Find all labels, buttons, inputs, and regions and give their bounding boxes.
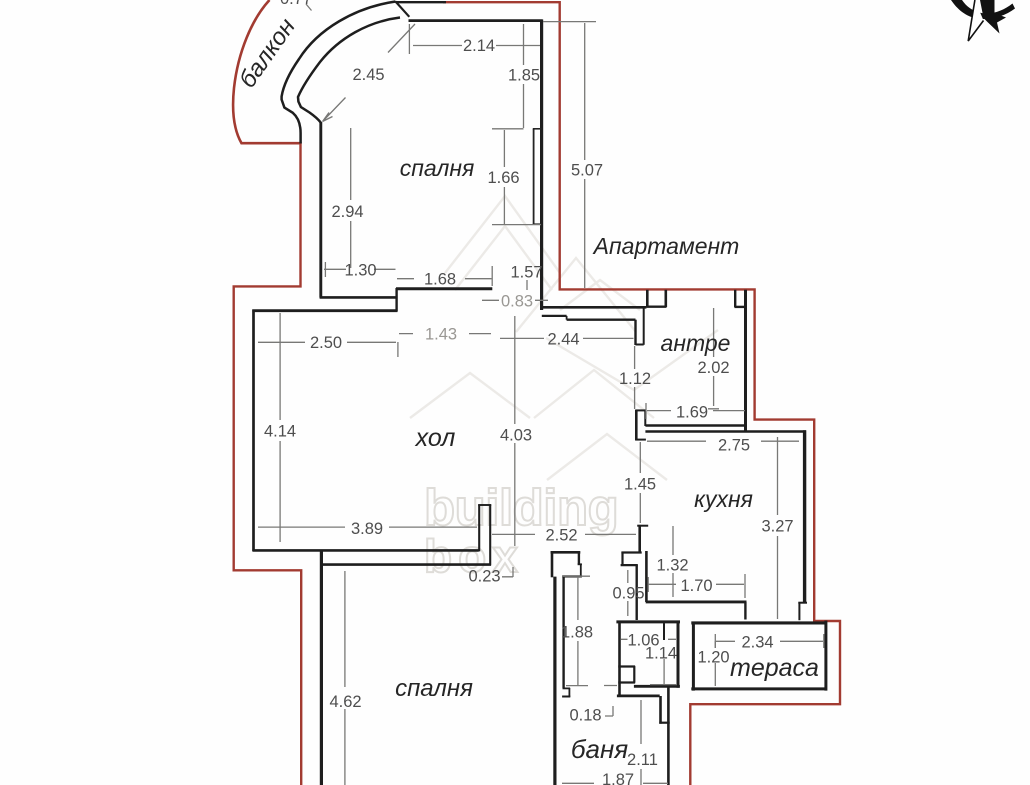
svg-text:антре: антре — [661, 330, 731, 356]
svg-text:1.68: 1.68 — [424, 271, 456, 289]
svg-text:4.62: 4.62 — [329, 693, 361, 711]
svg-text:2.50: 2.50 — [310, 334, 342, 352]
svg-text:спалня: спалня — [400, 155, 475, 181]
svg-text:1.43: 1.43 — [425, 326, 457, 344]
svg-text:4.14: 4.14 — [264, 423, 296, 441]
svg-text:1.20: 1.20 — [697, 649, 729, 667]
svg-text:баня: баня — [571, 734, 628, 764]
svg-text:2.75: 2.75 — [718, 437, 750, 455]
svg-text:хол: хол — [415, 424, 456, 452]
svg-text:1.30: 1.30 — [344, 262, 376, 280]
svg-text:2.34: 2.34 — [741, 634, 773, 652]
svg-text:кухня: кухня — [694, 486, 753, 512]
svg-text:тераса: тераса — [730, 654, 819, 682]
svg-text:1.12: 1.12 — [619, 370, 651, 388]
svg-text:5.07: 5.07 — [571, 162, 603, 180]
svg-text:0.95: 0.95 — [612, 585, 644, 603]
svg-text:0.18: 0.18 — [569, 707, 601, 725]
svg-text:4.03: 4.03 — [500, 427, 532, 445]
svg-text:1.66: 1.66 — [487, 169, 519, 187]
svg-text:Апартамент: Апартамент — [592, 233, 740, 259]
svg-text:2.02: 2.02 — [697, 359, 729, 377]
svg-text:3.89: 3.89 — [351, 520, 383, 538]
svg-text:2.44: 2.44 — [547, 331, 579, 349]
svg-text:0.83: 0.83 — [501, 293, 533, 311]
svg-text:2.14: 2.14 — [463, 37, 495, 55]
svg-text:1.88: 1.88 — [561, 624, 593, 642]
svg-text:1.57: 1.57 — [510, 264, 542, 282]
svg-text:0.77: 0.77 — [280, 0, 312, 8]
svg-text:0.23: 0.23 — [468, 568, 500, 586]
svg-text:1.32: 1.32 — [656, 557, 688, 575]
svg-text:1.87: 1.87 — [602, 771, 634, 785]
svg-text:1.69: 1.69 — [676, 404, 708, 422]
svg-text:1.70: 1.70 — [680, 577, 712, 595]
svg-text:1.45: 1.45 — [624, 476, 656, 494]
svg-text:3.27: 3.27 — [761, 518, 793, 536]
svg-text:2.94: 2.94 — [331, 203, 363, 221]
svg-text:2.52: 2.52 — [545, 527, 577, 545]
svg-text:2.45: 2.45 — [352, 66, 384, 84]
svg-text:спалня: спалня — [395, 675, 473, 702]
svg-text:2.11: 2.11 — [627, 751, 658, 769]
svg-text:1.14: 1.14 — [645, 645, 677, 663]
svg-text:1.85: 1.85 — [508, 67, 540, 85]
